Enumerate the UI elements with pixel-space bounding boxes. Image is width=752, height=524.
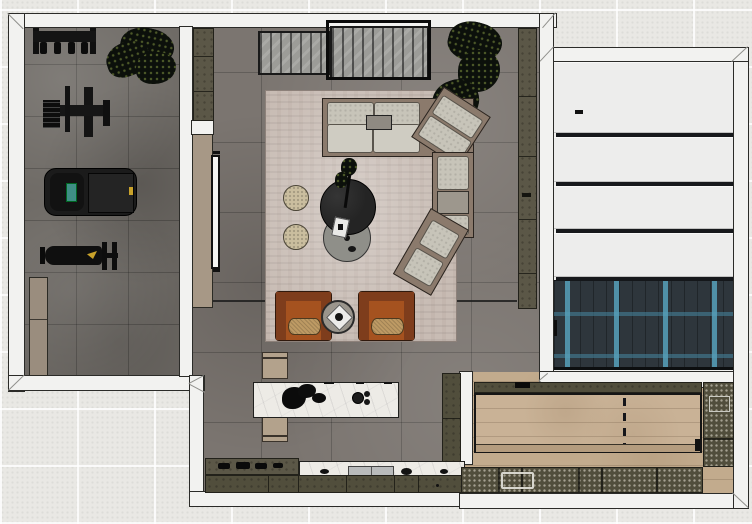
gym-storage-cabinet[interactable] (29, 277, 48, 376)
bench-edge (263, 357, 287, 359)
wall-kitchen-left (189, 375, 204, 507)
cabinet-tray-outline (501, 472, 534, 489)
game-room-side-cabinets[interactable] (703, 382, 734, 467)
leather-armchair[interactable] (358, 291, 415, 341)
weight-stack (43, 100, 60, 128)
shelf-cabinet-left[interactable] (193, 28, 214, 121)
armchair-arm (404, 292, 414, 340)
wall-game-bottom (459, 493, 749, 509)
round-side-table[interactable] (321, 300, 355, 334)
wall-gym-right (179, 26, 193, 377)
kitchen-tall-cabinet[interactable] (442, 373, 461, 462)
treadmill-badge (129, 187, 133, 195)
wall-game-left (459, 371, 473, 465)
armchair-seat (288, 318, 321, 335)
treadmill[interactable] (44, 168, 137, 216)
slatted-sideboard-left[interactable] (258, 31, 330, 75)
gym-plant[interactable] (106, 28, 180, 88)
weight-plate (54, 42, 61, 54)
counter-item (440, 469, 448, 474)
tv-screen[interactable] (211, 155, 220, 269)
machine-plates (103, 100, 110, 126)
cabinet-divider (194, 56, 213, 57)
cabinet-divider (194, 91, 213, 92)
wardrobe-panel-1[interactable] (554, 62, 734, 133)
floorplan-canvas (0, 0, 752, 524)
island-bench[interactable] (262, 416, 288, 442)
wall-outer-right (733, 47, 749, 509)
sink-divider (371, 467, 372, 475)
island-bench[interactable] (262, 352, 288, 379)
wall-gym-bottom (8, 375, 205, 391)
island-bowl (352, 392, 364, 404)
table-book-mark (338, 224, 343, 230)
shelf-cabinet-right[interactable] (518, 28, 537, 309)
bench-edge (263, 435, 287, 437)
wardrobe-panel-3[interactable] (554, 186, 734, 229)
wall-left (8, 13, 25, 392)
window-frame (326, 20, 431, 80)
cabinet-divider (346, 476, 347, 492)
band-item (515, 382, 530, 388)
cabinet-divider (519, 273, 536, 274)
island-edge-mark (356, 382, 364, 384)
table-front-edge (476, 444, 700, 452)
counter-item (401, 468, 412, 475)
cabinet-divider (519, 156, 536, 157)
table-centerline-dashed (623, 395, 626, 451)
table-plant-sprig (333, 158, 361, 210)
herringbone-floor (553, 280, 734, 370)
treadmill-belt (88, 173, 134, 213)
machine-arm (65, 86, 70, 132)
wall-media-stub (191, 120, 214, 135)
cabinet-divider (30, 319, 47, 320)
cabinet-divider (498, 468, 500, 492)
cable-machine[interactable] (43, 86, 111, 138)
cabinet-divider (443, 418, 460, 419)
counter-item (320, 469, 329, 474)
island-edge-mark (384, 382, 392, 384)
wardrobe-panel-4[interactable] (554, 233, 734, 277)
cooktop-burner (255, 463, 267, 469)
cooktop-burner (218, 463, 230, 469)
bench-frame (102, 253, 118, 258)
cabinet-knob (436, 484, 439, 487)
cabinet-item (522, 193, 531, 197)
cabinet-divider (578, 468, 580, 492)
floor-pouf[interactable] (283, 185, 309, 211)
cabinet-divider (418, 476, 419, 492)
island-plant-decor (312, 393, 326, 403)
floor-pouf[interactable] (283, 224, 309, 250)
tv-media-panel[interactable] (192, 134, 213, 308)
tv-mount-mark (213, 151, 220, 154)
cabinet-divider (704, 438, 733, 440)
cabinet-divider (298, 476, 299, 492)
cabinet-divider (268, 476, 269, 492)
kitchen-island[interactable] (253, 382, 399, 418)
plant-foliage (136, 52, 176, 84)
cooktop-burner (236, 462, 250, 469)
sofa-cushion-right (437, 156, 469, 190)
cabinet-divider (519, 219, 536, 220)
weight-plate (40, 42, 47, 54)
cabinet-divider (656, 468, 658, 492)
armchair-seat (371, 318, 404, 335)
sofa-armrest-tray (366, 115, 392, 130)
kitchen-base-cabinets[interactable] (205, 475, 463, 493)
armchair-arm (276, 292, 286, 340)
game-room-top-band (474, 382, 702, 393)
island-bowl (364, 391, 370, 397)
weight-rack[interactable] (33, 27, 97, 56)
cooktop-burner (273, 463, 283, 468)
tv-mount-mark (213, 269, 220, 272)
table-decor-dot (348, 246, 356, 252)
wardrobe-panel-2[interactable] (554, 137, 734, 182)
cabinet-divider (601, 468, 603, 492)
sofa-corner-table (437, 191, 469, 214)
table-corner-bracket (695, 439, 700, 451)
treadmill-screen (66, 183, 77, 202)
weight-plate (81, 42, 88, 54)
cooktop-counter[interactable] (205, 458, 299, 475)
game-table[interactable] (474, 393, 702, 453)
armchair-arm (359, 292, 369, 340)
island-bowl (364, 399, 370, 405)
cabinet-item-outline (709, 396, 730, 412)
wall-mid-vertical (539, 13, 554, 388)
weight-plate (68, 42, 75, 54)
wall-kitchen-bottom (189, 491, 474, 507)
game-room-bottom-cabinets[interactable] (461, 467, 703, 493)
cabinet-divider (519, 96, 536, 97)
workout-bench[interactable] (40, 242, 120, 270)
rack-bar (33, 31, 96, 42)
cabinet-divider (394, 476, 395, 492)
wardrobe-panel-gap (556, 277, 733, 280)
tray-cup (335, 313, 343, 321)
wall-top-right (540, 47, 749, 62)
wardrobe-handle-mark (575, 110, 583, 114)
island-edge-mark (324, 382, 334, 384)
